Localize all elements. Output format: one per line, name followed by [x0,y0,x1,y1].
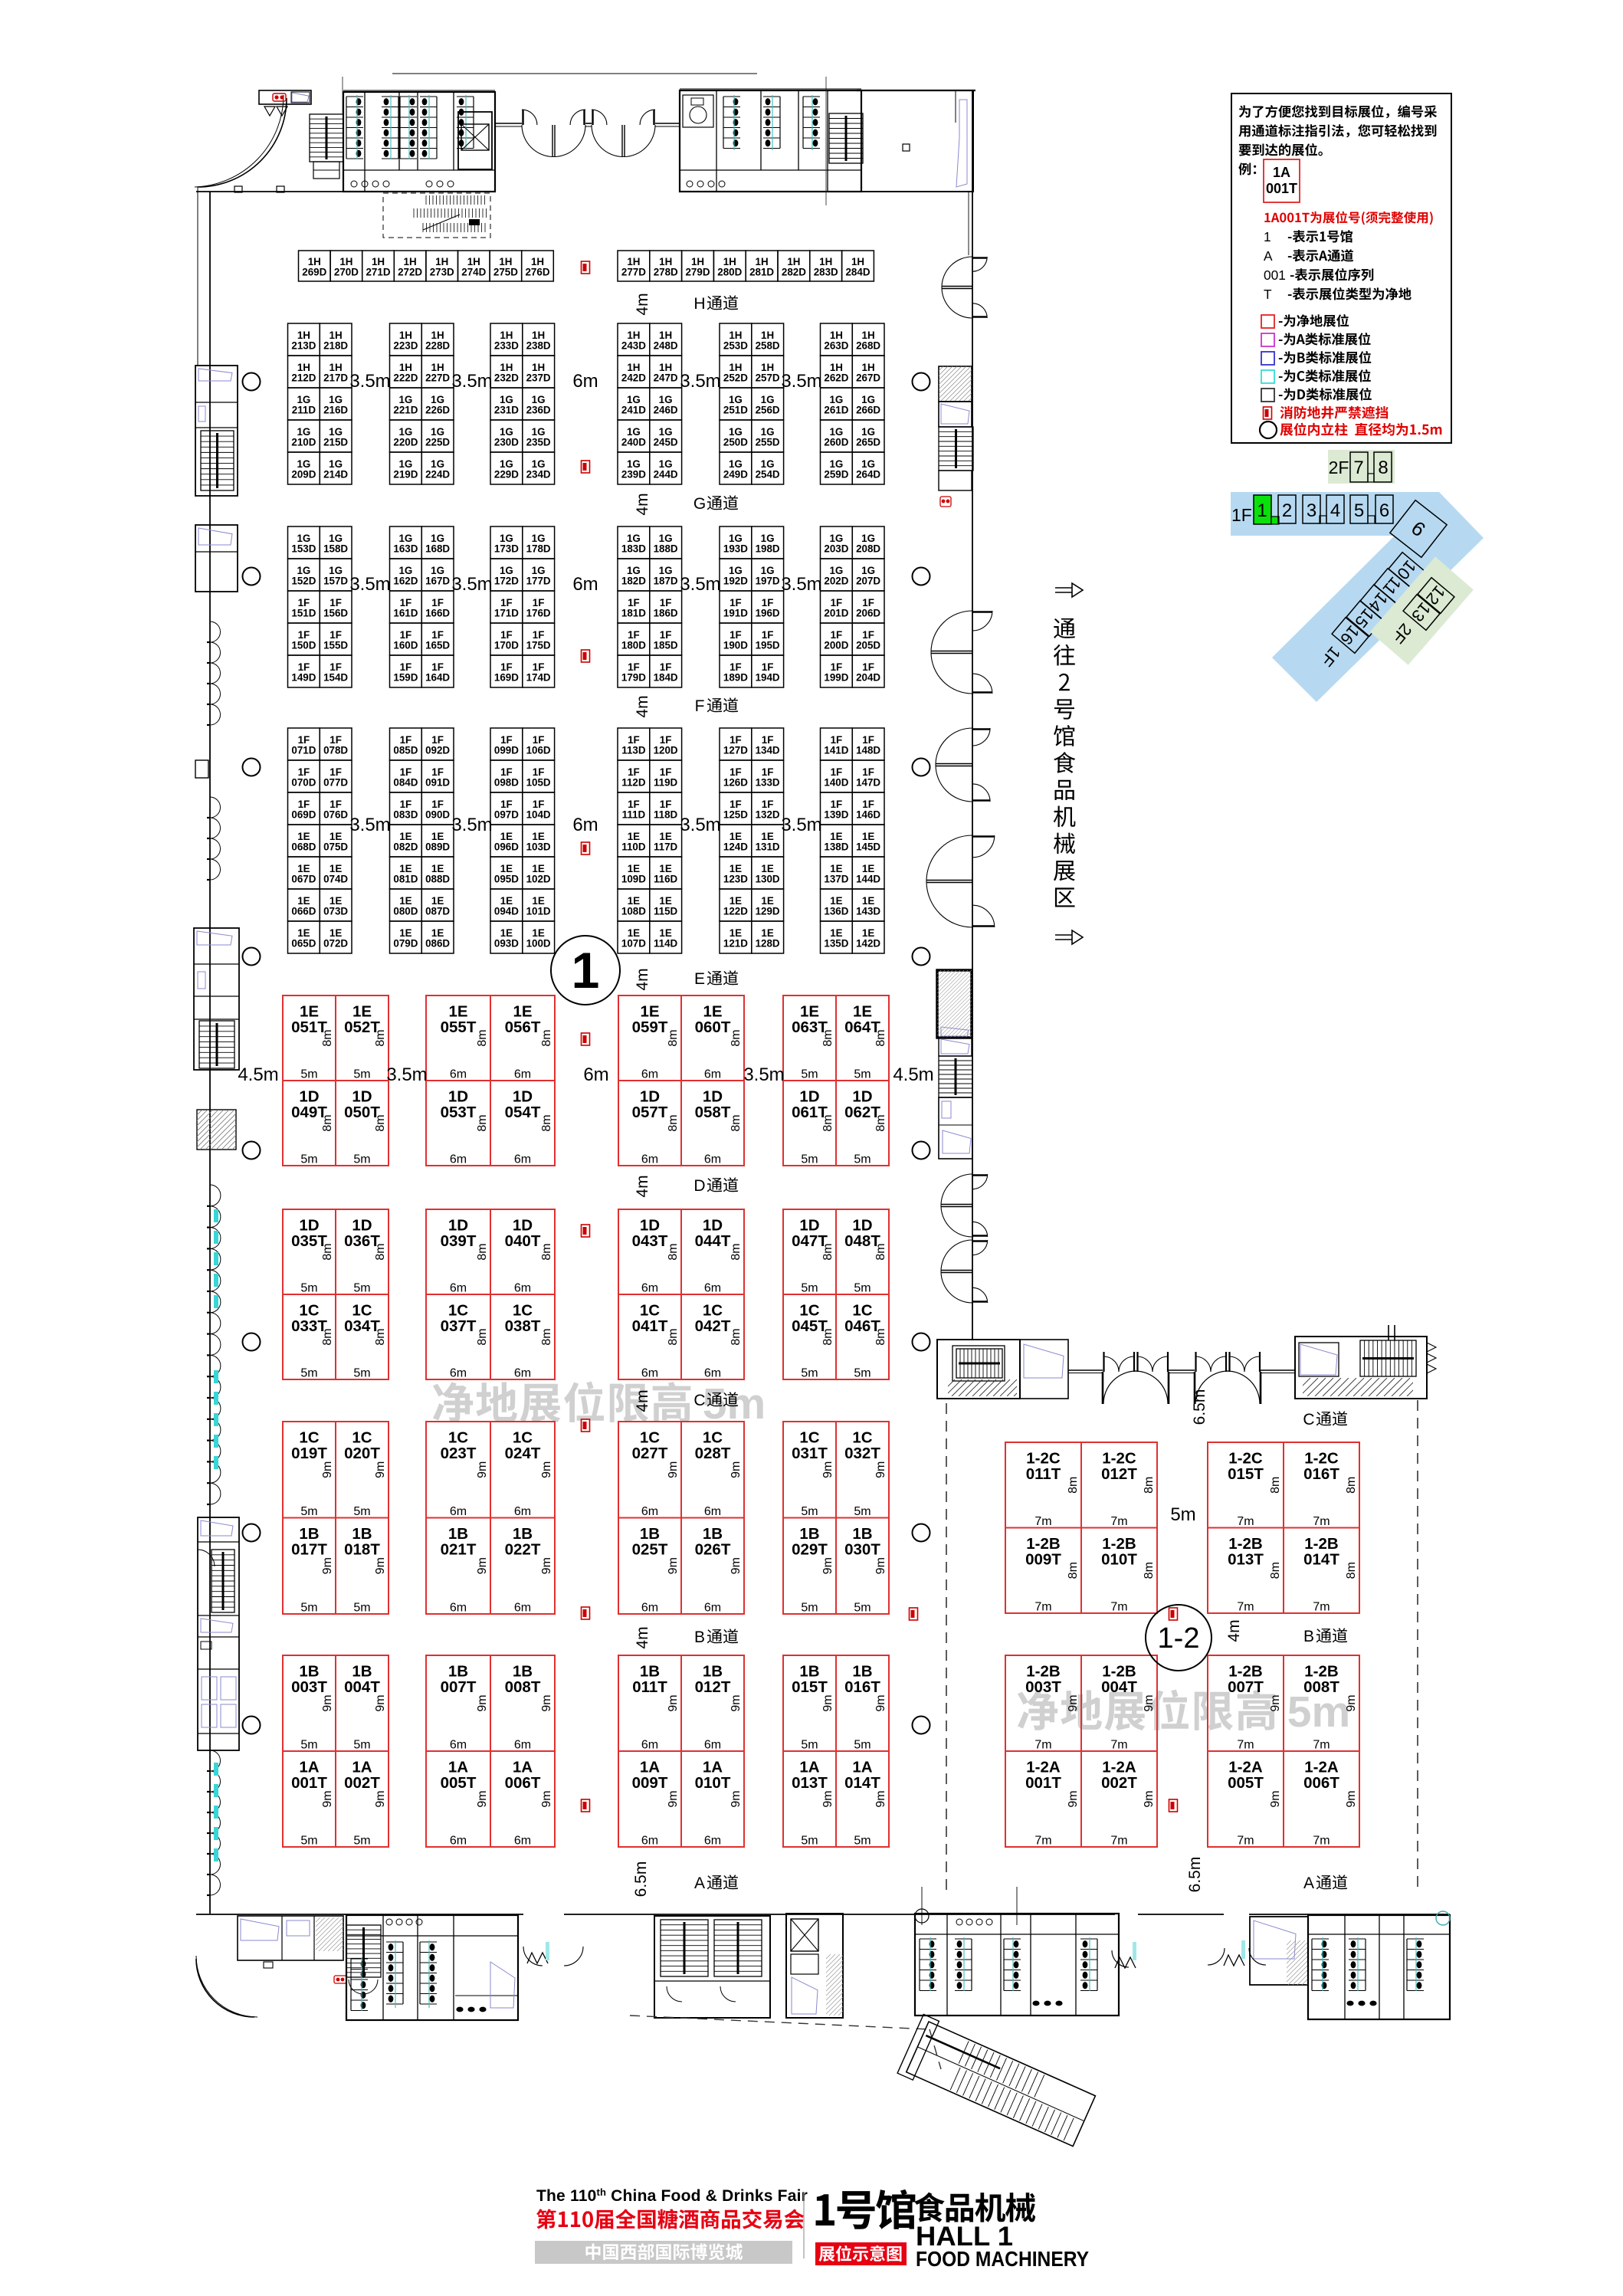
svg-text:3.5m: 3.5m [451,815,492,835]
svg-text:G: G [693,495,706,513]
svg-text:1-2A005T: 1-2A005T [1228,1759,1264,1793]
svg-text:9m: 9m [1143,1790,1156,1807]
svg-text:5m: 5m [854,1282,871,1295]
svg-text:5m: 5m [801,1153,818,1166]
svg-text:9m: 9m [1067,1694,1080,1711]
svg-text:FOOD MACHINERY: FOOD MACHINERY [916,2247,1089,2271]
svg-text:1-2B007T: 1-2B007T [1228,1663,1264,1697]
svg-text:6m: 6m [641,1367,658,1380]
svg-text:6m: 6m [450,1282,467,1295]
svg-text:9m: 9m [874,1557,887,1574]
svg-text:5m: 5m [801,1739,818,1752]
svg-text:9m: 9m [821,1790,834,1807]
svg-text:6m: 6m [450,1739,467,1752]
svg-text:1-2B010T: 1-2B010T [1101,1535,1137,1569]
svg-text:5m: 5m [1170,1504,1195,1525]
svg-text:C: C [1303,1411,1314,1428]
svg-text:6m: 6m [704,1602,721,1615]
svg-text:C: C [693,1392,705,1409]
svg-text:6m: 6m [641,1602,658,1615]
svg-text:5m: 5m [300,1602,317,1615]
svg-text:8: 8 [1378,458,1388,478]
svg-text:5m: 5m [801,1068,818,1081]
svg-text:5m: 5m [353,1602,370,1615]
svg-text:5m: 5m [801,1835,818,1848]
svg-text:8m: 8m [476,1114,489,1131]
svg-text:9m: 9m [821,1461,834,1478]
svg-text:3.5m: 3.5m [680,371,720,392]
svg-text:3.5m: 3.5m [781,574,821,595]
svg-text:3: 3 [1307,500,1316,521]
svg-text:9m: 9m [874,1694,887,1711]
svg-text:5m: 5m [801,1602,818,1615]
svg-text:4.5m: 4.5m [893,1064,933,1085]
svg-text:1-2: 1-2 [1158,1622,1200,1655]
svg-text:9m: 9m [321,1557,334,1574]
svg-text:9m: 9m [1345,1694,1358,1711]
svg-text:9m: 9m [374,1461,387,1478]
svg-text:5m: 5m [854,1602,871,1615]
svg-text:8m: 8m [321,1328,334,1345]
svg-text:5m: 5m [353,1835,370,1848]
svg-text:8m: 8m [874,1243,887,1260]
svg-text:5m: 5m [300,1367,317,1380]
svg-text:5m: 5m [353,1153,370,1166]
svg-text:9m: 9m [667,1694,680,1711]
svg-text:6m: 6m [514,1505,531,1518]
svg-text:6m: 6m [572,574,598,595]
svg-text:8m: 8m [476,1328,489,1345]
svg-text:6m: 6m [704,1282,721,1295]
svg-text:5m: 5m [300,1068,317,1081]
svg-text:9m: 9m [667,1790,680,1807]
svg-text:7m: 7m [1110,1739,1127,1752]
svg-text:5m: 5m [300,1739,317,1752]
svg-text:8m: 8m [540,1114,553,1131]
svg-text:9m: 9m [874,1461,887,1478]
svg-text:5m: 5m [854,1505,871,1518]
svg-text:5m: 5m [801,1505,818,1518]
svg-text:9m: 9m [374,1694,387,1711]
svg-text:8m: 8m [821,1328,834,1345]
svg-text:001T: 001T [1266,181,1297,196]
svg-text:5m: 5m [300,1153,317,1166]
svg-text:7m: 7m [1110,1515,1127,1528]
svg-text:9m: 9m [540,1694,553,1711]
svg-text:1: 1 [1257,500,1267,521]
svg-text:5m: 5m [353,1282,370,1295]
svg-text:4m: 4m [634,968,651,990]
svg-text:1-2B009T: 1-2B009T [1025,1535,1061,1569]
svg-text:5m: 5m [353,1505,370,1518]
svg-text:4m: 4m [634,1175,651,1197]
svg-text:8m: 8m [321,1029,334,1046]
svg-text:8m: 8m [730,1029,743,1046]
svg-text:6m: 6m [450,1367,467,1380]
svg-text:8m: 8m [730,1243,743,1260]
svg-text:6.5m: 6.5m [1186,1857,1204,1893]
svg-text:8m: 8m [1269,1477,1282,1494]
svg-text:The 110th China Food & Drinks: The 110th China Food & Drinks Fair [536,2186,808,2205]
svg-text:6m: 6m [450,1068,467,1081]
svg-text:1-2B003T: 1-2B003T [1025,1663,1061,1697]
svg-text:1-2A006T: 1-2A006T [1303,1759,1339,1793]
svg-text:6m: 6m [514,1835,531,1848]
svg-text:A: A [1303,1875,1314,1892]
svg-text:9m: 9m [667,1461,680,1478]
svg-text:6m: 6m [704,1739,721,1752]
svg-text:8m: 8m [374,1243,387,1260]
svg-text:8m: 8m [1345,1477,1358,1494]
svg-text:5m: 5m [854,1367,871,1380]
svg-text:1: 1 [572,942,600,999]
svg-text:6m: 6m [514,1153,531,1166]
svg-text:1-2C011T: 1-2C011T [1026,1450,1061,1484]
svg-text:2: 2 [1282,500,1292,521]
svg-text:8m: 8m [1143,1562,1156,1579]
svg-text:6m: 6m [704,1505,721,1518]
svg-text:3.5m: 3.5m [781,815,821,835]
svg-text:5m: 5m [801,1367,818,1380]
svg-text:6m: 6m [641,1282,658,1295]
svg-text:6m: 6m [704,1153,721,1166]
svg-text:9m: 9m [476,1557,489,1574]
svg-text:8m: 8m [874,1029,887,1046]
svg-text:7m: 7m [1313,1515,1330,1528]
svg-text:9m: 9m [1143,1694,1156,1711]
svg-text:6m: 6m [641,1153,658,1166]
svg-text:7m: 7m [1110,1601,1127,1614]
svg-text:8m: 8m [1269,1562,1282,1579]
svg-text:5m: 5m [353,1068,370,1081]
svg-text:8m: 8m [874,1328,887,1345]
svg-text:8m: 8m [667,1328,680,1345]
svg-text:7: 7 [1353,458,1363,478]
svg-text:3.5m: 3.5m [451,371,492,392]
svg-text:6m: 6m [704,1367,721,1380]
svg-text:7m: 7m [1313,1739,1330,1752]
svg-text:8m: 8m [1345,1562,1358,1579]
svg-text:3.5m: 3.5m [386,1064,427,1085]
svg-text:3.5m: 3.5m [743,1064,784,1085]
svg-text:4m: 4m [1225,1619,1243,1642]
svg-text:4m: 4m [634,493,651,515]
svg-text:7m: 7m [1034,1601,1051,1614]
svg-text:9m: 9m [540,1790,553,1807]
svg-text:8m: 8m [374,1328,387,1345]
svg-text:9m: 9m [540,1557,553,1574]
svg-text:H: H [693,295,705,313]
svg-text:9m: 9m [1269,1790,1282,1807]
svg-text:9m: 9m [1067,1790,1080,1807]
svg-text:A: A [1264,248,1273,264]
svg-text:9m: 9m [730,1790,743,1807]
svg-text:6m: 6m [450,1835,467,1848]
svg-text:5: 5 [1354,500,1364,521]
svg-text:1-2B014T: 1-2B014T [1303,1535,1339,1569]
svg-text:5m: 5m [801,1282,818,1295]
svg-text:3.5m: 3.5m [349,371,390,392]
svg-text:5m: 5m [353,1367,370,1380]
svg-text:8m: 8m [1067,1562,1080,1579]
svg-text:4m: 4m [634,293,651,315]
svg-text:9m: 9m [321,1461,334,1478]
svg-text:6m: 6m [572,815,598,835]
svg-text:6m: 6m [641,1835,658,1848]
svg-text:7m: 7m [1237,1739,1254,1752]
svg-text:7m: 7m [1110,1835,1127,1848]
svg-text:7m: 7m [1237,1601,1254,1614]
svg-text:5m: 5m [353,1739,370,1752]
svg-text:6m: 6m [514,1367,531,1380]
svg-text:8m: 8m [476,1029,489,1046]
svg-text:9m: 9m [321,1790,334,1807]
svg-text:1-2C016T: 1-2C016T [1303,1450,1339,1484]
svg-text:8m: 8m [476,1243,489,1260]
svg-text:7m: 7m [1237,1515,1254,1528]
svg-text:6m: 6m [572,371,598,392]
svg-text:6m: 6m [514,1282,531,1295]
svg-text:9m: 9m [321,1694,334,1711]
svg-text:1-2A002T: 1-2A002T [1101,1759,1137,1793]
svg-text:D: D [693,1177,705,1195]
svg-text:1-2C015T: 1-2C015T [1228,1450,1264,1484]
svg-text:1-2B004T: 1-2B004T [1101,1663,1137,1697]
svg-text:3.5m: 3.5m [680,574,720,595]
svg-text:9m: 9m [1345,1790,1358,1807]
svg-text:9m: 9m [667,1557,680,1574]
svg-text:8m: 8m [874,1114,887,1131]
svg-text:4m: 4m [634,1389,651,1412]
svg-text:8m: 8m [540,1029,553,1046]
svg-text:B: B [1303,1628,1314,1645]
svg-text:6m: 6m [583,1064,608,1085]
svg-text:2F: 2F [1329,458,1349,477]
svg-text:5m: 5m [854,1153,871,1166]
svg-text:8m: 8m [321,1114,334,1131]
svg-text:9m: 9m [821,1557,834,1574]
svg-text:4.5m: 4.5m [238,1064,278,1085]
svg-text:6.5m: 6.5m [1191,1389,1208,1425]
svg-text:6m: 6m [450,1153,467,1166]
svg-text:6m: 6m [450,1505,467,1518]
svg-text:5m: 5m [854,1068,871,1081]
svg-text:5m: 5m [300,1282,317,1295]
svg-text:6m: 6m [641,1068,658,1081]
svg-text:8m: 8m [1067,1477,1080,1494]
svg-text:6m: 6m [514,1739,531,1752]
svg-text:8m: 8m [667,1114,680,1131]
svg-text:8m: 8m [730,1328,743,1345]
svg-text:7m: 7m [1034,1515,1051,1528]
svg-text:8m: 8m [1143,1477,1156,1494]
svg-text:9m: 9m [730,1694,743,1711]
svg-text:7m: 7m [1313,1601,1330,1614]
svg-text:9m: 9m [476,1790,489,1807]
svg-text:7m: 7m [1313,1835,1330,1848]
svg-text:9m: 9m [1269,1694,1282,1711]
svg-text:A: A [694,1875,705,1892]
svg-text:8m: 8m [321,1243,334,1260]
svg-text:3.5m: 3.5m [781,371,821,392]
svg-text:3.5m: 3.5m [349,574,390,595]
svg-text:6m: 6m [450,1602,467,1615]
svg-text:7m: 7m [1034,1835,1051,1848]
svg-text:3.5m: 3.5m [451,574,492,595]
svg-text:8m: 8m [374,1114,387,1131]
svg-text:9m: 9m [874,1790,887,1807]
svg-text:1: 1 [1264,229,1271,244]
svg-text:1-2C012T: 1-2C012T [1101,1450,1137,1484]
svg-text:5m: 5m [300,1835,317,1848]
svg-text:9m: 9m [374,1790,387,1807]
svg-text:4: 4 [1330,500,1340,521]
svg-text:6m: 6m [641,1505,658,1518]
svg-text:1F: 1F [1231,505,1252,525]
svg-text:1-2B013T: 1-2B013T [1228,1535,1264,1569]
svg-text:4m: 4m [634,1626,651,1648]
svg-text:1A: 1A [1273,165,1290,180]
svg-text:6m: 6m [704,1068,721,1081]
svg-text:7m: 7m [1034,1739,1051,1752]
svg-text:6m: 6m [514,1602,531,1615]
svg-text:8m: 8m [374,1029,387,1046]
svg-text:4m: 4m [634,695,651,717]
svg-text:9m: 9m [730,1461,743,1478]
svg-text:8m: 8m [667,1029,680,1046]
svg-text:6: 6 [1379,500,1389,521]
svg-text:8m: 8m [730,1114,743,1131]
svg-text:5m: 5m [300,1505,317,1518]
svg-text:6m: 6m [704,1835,721,1848]
svg-text:9m: 9m [476,1461,489,1478]
svg-text:8m: 8m [667,1243,680,1260]
svg-text:8m: 8m [821,1243,834,1260]
svg-text:001: 001 [1264,267,1286,283]
svg-text:B: B [694,1629,705,1646]
svg-text:E: E [694,970,705,988]
svg-text:6.5m: 6.5m [632,1861,650,1897]
svg-text:5m: 5m [854,1835,871,1848]
svg-text:9m: 9m [540,1461,553,1478]
svg-text:8m: 8m [821,1029,834,1046]
svg-text:3.5m: 3.5m [680,815,720,835]
svg-text:6m: 6m [641,1739,658,1752]
svg-text:9m: 9m [374,1557,387,1574]
svg-text:6m: 6m [514,1068,531,1081]
svg-text:9m: 9m [821,1694,834,1711]
svg-text:8m: 8m [540,1328,553,1345]
svg-text:9m: 9m [730,1557,743,1574]
svg-text:5m: 5m [854,1739,871,1752]
svg-text:7m: 7m [1237,1835,1254,1848]
svg-text:8m: 8m [821,1114,834,1131]
svg-text:1-2A001T: 1-2A001T [1025,1759,1061,1793]
svg-text:1-2B008T: 1-2B008T [1303,1663,1339,1697]
svg-text:9m: 9m [476,1694,489,1711]
svg-text:3.5m: 3.5m [349,815,390,835]
svg-text:8m: 8m [540,1243,553,1260]
svg-text:T: T [1264,287,1272,302]
svg-text:F: F [695,697,705,715]
